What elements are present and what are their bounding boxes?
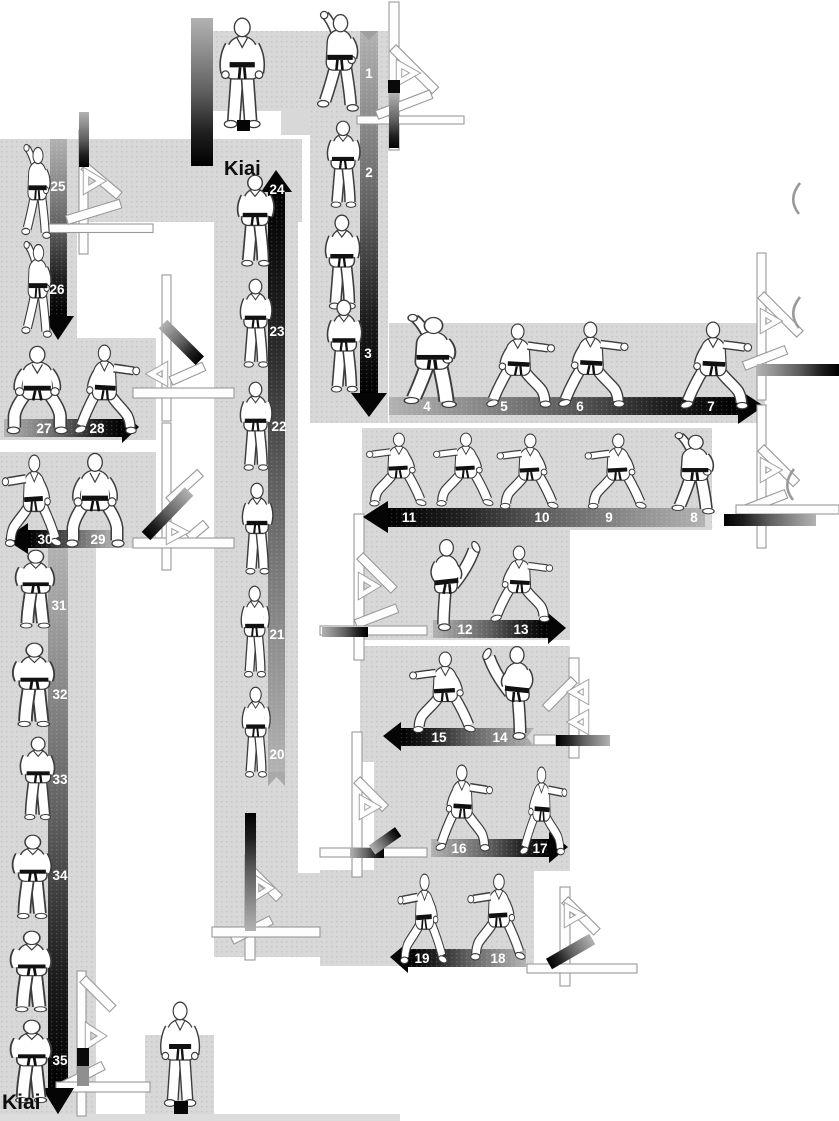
svg-text:12: 12 xyxy=(457,622,472,637)
svg-text:18: 18 xyxy=(490,951,506,966)
svg-text:29: 29 xyxy=(90,532,105,547)
svg-text:15: 15 xyxy=(431,730,447,745)
svg-text:17: 17 xyxy=(532,841,547,856)
svg-text:4: 4 xyxy=(423,399,431,414)
svg-text:19: 19 xyxy=(414,951,429,966)
svg-text:31: 31 xyxy=(51,598,67,613)
svg-text:34: 34 xyxy=(52,868,68,883)
svg-text:Kiai: Kiai xyxy=(224,158,261,180)
svg-text:2: 2 xyxy=(365,165,373,180)
svg-text:33: 33 xyxy=(52,772,68,787)
svg-text:32: 32 xyxy=(52,687,67,702)
svg-text:27: 27 xyxy=(36,421,51,436)
svg-text:Kiai: Kiai xyxy=(2,1091,41,1114)
svg-text:1: 1 xyxy=(365,66,373,81)
svg-text:30: 30 xyxy=(37,532,52,547)
svg-text:7: 7 xyxy=(707,399,715,414)
svg-text:10: 10 xyxy=(534,510,549,525)
svg-text:16: 16 xyxy=(451,841,467,856)
svg-text:23: 23 xyxy=(269,324,285,339)
svg-text:3: 3 xyxy=(364,346,372,361)
svg-text:11: 11 xyxy=(402,510,417,525)
svg-text:8: 8 xyxy=(690,510,698,525)
svg-text:35: 35 xyxy=(52,1053,68,1068)
svg-text:20: 20 xyxy=(269,747,284,762)
svg-text:6: 6 xyxy=(576,399,584,414)
svg-text:25: 25 xyxy=(50,179,66,194)
svg-text:21: 21 xyxy=(269,627,285,642)
svg-text:5: 5 xyxy=(500,399,508,414)
svg-text:22: 22 xyxy=(271,419,286,434)
svg-text:13: 13 xyxy=(513,622,529,637)
svg-text:28: 28 xyxy=(89,421,105,436)
svg-text:24: 24 xyxy=(269,182,285,197)
svg-text:14: 14 xyxy=(492,730,508,745)
svg-text:26: 26 xyxy=(49,282,65,297)
svg-text:9: 9 xyxy=(605,510,613,525)
